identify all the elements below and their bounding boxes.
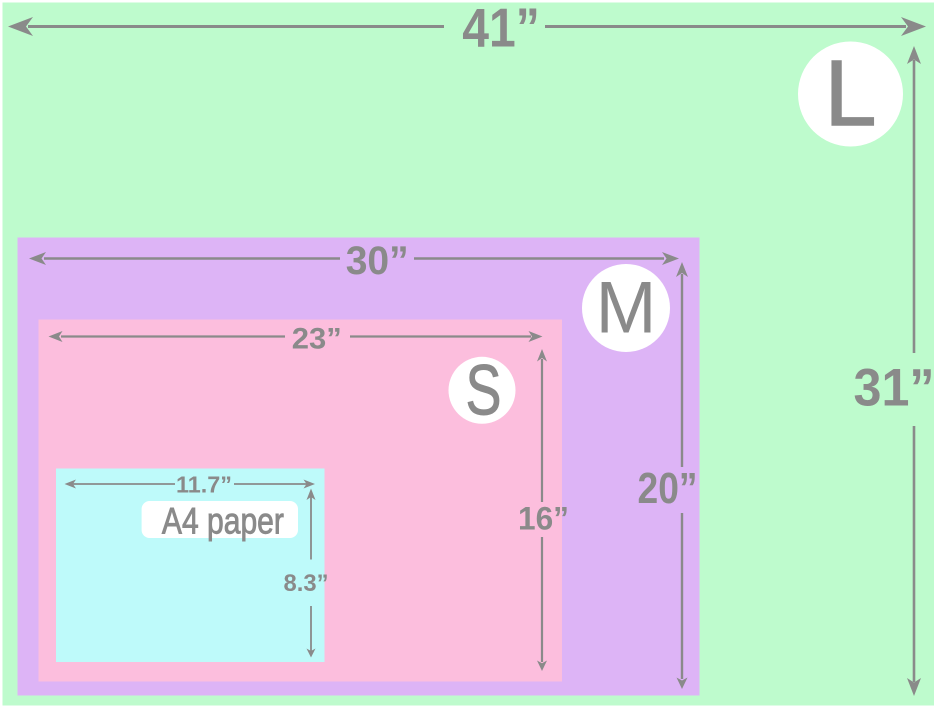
- svg-text:S: S: [466, 351, 502, 430]
- svg-text:30”: 30”: [346, 239, 409, 283]
- svg-text:M: M: [596, 267, 657, 348]
- svg-text:31”: 31”: [854, 358, 935, 417]
- svg-text:8.3”: 8.3”: [284, 570, 329, 597]
- svg-text:L: L: [825, 41, 877, 145]
- svg-text:16”: 16”: [518, 501, 569, 537]
- svg-text:A4 paper: A4 paper: [162, 499, 284, 541]
- svg-text:11.7”: 11.7”: [176, 471, 232, 497]
- svg-text:41”: 41”: [462, 0, 540, 58]
- svg-text:23”: 23”: [292, 322, 342, 355]
- svg-text:20”: 20”: [638, 464, 698, 513]
